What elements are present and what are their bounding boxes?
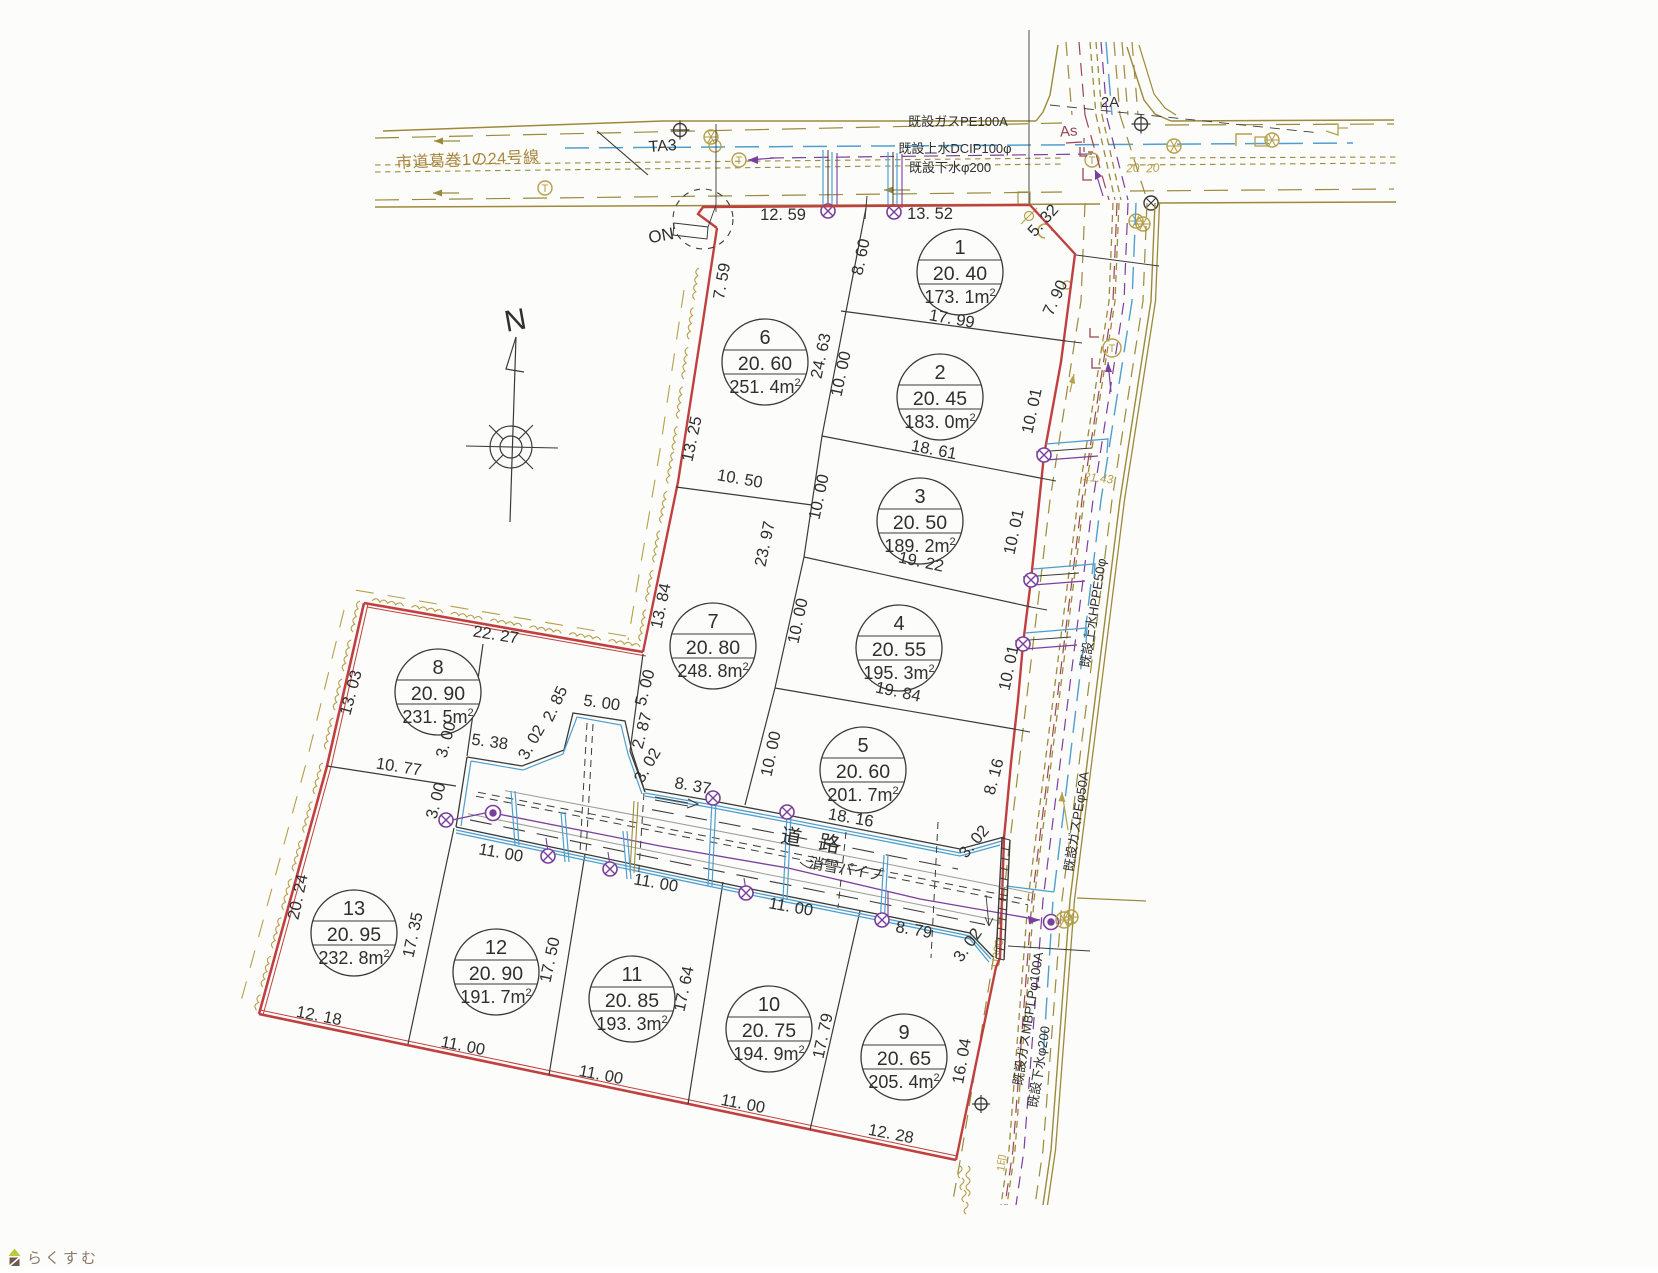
svg-text:251. 4m2: 251. 4m2 bbox=[729, 377, 800, 397]
svg-text:13: 13 bbox=[343, 898, 365, 920]
svg-text:TA3: TA3 bbox=[648, 137, 677, 156]
svg-text:12. 59: 12. 59 bbox=[760, 206, 806, 224]
svg-text:20. 60: 20. 60 bbox=[836, 761, 890, 783]
svg-text:20. 40: 20. 40 bbox=[933, 263, 987, 285]
svg-text:10: 10 bbox=[758, 994, 780, 1016]
svg-text:4: 4 bbox=[893, 613, 904, 635]
svg-text:20. 65: 20. 65 bbox=[877, 1048, 931, 1070]
svg-text:12: 12 bbox=[485, 937, 507, 959]
svg-text:232. 8m2: 232. 8m2 bbox=[318, 948, 389, 968]
svg-text:20. 90: 20. 90 bbox=[411, 683, 465, 705]
svg-text:20. 85: 20. 85 bbox=[605, 990, 659, 1012]
svg-text:T: T bbox=[542, 183, 549, 195]
svg-text:193. 3m2: 193. 3m2 bbox=[596, 1014, 667, 1034]
svg-text:8: 8 bbox=[432, 657, 443, 679]
svg-text:20. 55: 20. 55 bbox=[872, 639, 926, 661]
svg-text:既設上水DCIP100φ: 既設上水DCIP100φ bbox=[898, 141, 1011, 156]
svg-text:7: 7 bbox=[707, 611, 718, 633]
svg-text:231. 5m2: 231. 5m2 bbox=[402, 707, 473, 727]
svg-text:T: T bbox=[736, 155, 743, 167]
svg-text:20. 75: 20. 75 bbox=[742, 1020, 796, 1042]
svg-text:既設下水φ200: 既設下水φ200 bbox=[909, 160, 991, 175]
svg-text:20: 20 bbox=[1125, 161, 1141, 176]
svg-text:20. 90: 20. 90 bbox=[469, 963, 523, 985]
svg-text:らくすむ: らくすむ bbox=[27, 1250, 99, 1267]
svg-text:6: 6 bbox=[759, 327, 770, 349]
svg-text:201. 7m2: 201. 7m2 bbox=[827, 785, 898, 805]
svg-text:191. 7m2: 191. 7m2 bbox=[460, 987, 531, 1007]
svg-text:1: 1 bbox=[954, 237, 965, 259]
svg-text:20. 95: 20. 95 bbox=[327, 924, 381, 946]
svg-text:T: T bbox=[1089, 155, 1096, 167]
svg-text:248. 8m2: 248. 8m2 bbox=[677, 661, 748, 681]
svg-text:20. 50: 20. 50 bbox=[893, 512, 947, 534]
svg-text:2A: 2A bbox=[1101, 94, 1119, 111]
svg-text:20: 20 bbox=[1145, 161, 1161, 176]
svg-text:5: 5 bbox=[857, 735, 868, 757]
svg-text:173. 1m2: 173. 1m2 bbox=[924, 287, 995, 307]
svg-text:13. 52: 13. 52 bbox=[907, 205, 953, 223]
svg-text:As: As bbox=[1059, 122, 1078, 140]
svg-text:20. 60: 20. 60 bbox=[738, 353, 792, 375]
svg-text:183. 0m2: 183. 0m2 bbox=[904, 412, 975, 432]
svg-text:2: 2 bbox=[934, 362, 945, 384]
svg-text:205. 4m2: 205. 4m2 bbox=[868, 1072, 939, 1092]
svg-text:T: T bbox=[1109, 343, 1116, 355]
svg-text:既設ガスPE100A: 既設ガスPE100A bbox=[908, 114, 1008, 129]
svg-text:195. 3m2: 195. 3m2 bbox=[863, 663, 934, 683]
svg-text:3: 3 bbox=[914, 486, 925, 508]
svg-text:9: 9 bbox=[898, 1022, 909, 1044]
svg-text:20. 45: 20. 45 bbox=[913, 388, 967, 410]
svg-text:11: 11 bbox=[622, 964, 643, 986]
svg-text:20. 80: 20. 80 bbox=[686, 637, 740, 659]
svg-text:194. 9m2: 194. 9m2 bbox=[733, 1044, 804, 1064]
